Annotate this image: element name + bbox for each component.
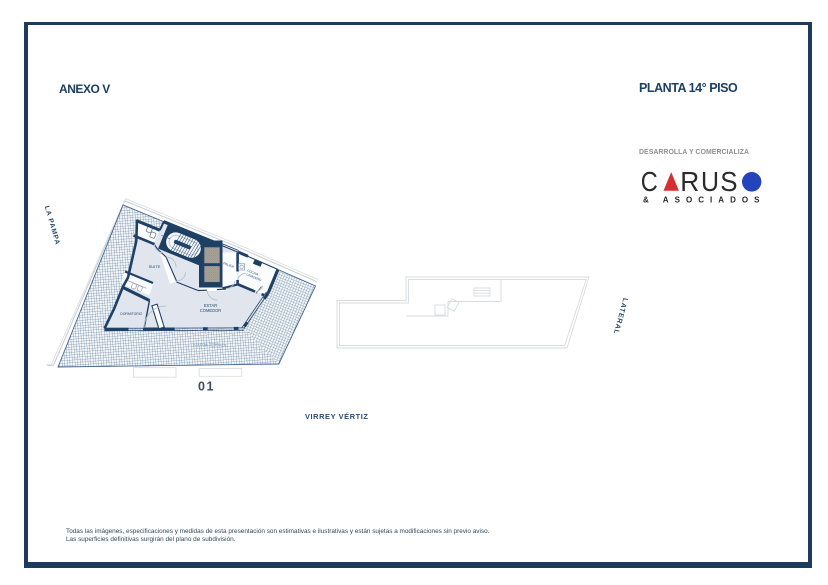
svg-text:LA PAMPA: LA PAMPA bbox=[43, 205, 61, 246]
svg-text:VIRREY VÉRTIZ: VIRREY VÉRTIZ bbox=[305, 412, 369, 421]
svg-text:COMEDOR: COMEDOR bbox=[200, 308, 221, 313]
svg-text:LATERAL: LATERAL bbox=[612, 297, 629, 335]
svg-text:01: 01 bbox=[198, 380, 215, 394]
svg-text:DORMITORIO: DORMITORIO bbox=[120, 312, 142, 316]
svg-text:SUITE: SUITE bbox=[149, 264, 161, 269]
svg-text:BALCON TERRAZA: BALCON TERRAZA bbox=[193, 342, 226, 347]
